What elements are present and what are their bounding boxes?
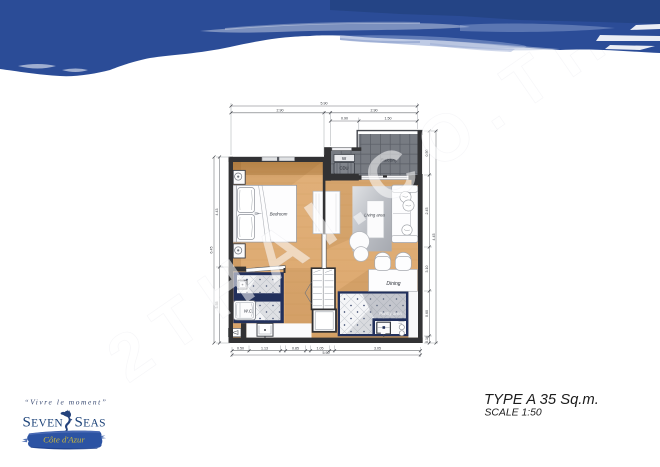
svg-text:Côte d'Azur: Côte d'Azur [43, 435, 85, 445]
svg-text:0.60: 0.60 [425, 310, 429, 317]
svg-text:“Vivre le moment”: “Vivre le moment” [24, 398, 107, 407]
svg-text:1.50: 1.50 [385, 117, 392, 121]
svg-text:SEVEN: SEVEN [23, 415, 64, 431]
svg-text:3.05: 3.05 [374, 347, 381, 351]
svg-text:TYPE A 35 Sq.m.: TYPE A 35 Sq.m. [484, 392, 599, 408]
svg-text:SCALE 1:50: SCALE 1:50 [485, 407, 542, 418]
svg-text:0.90: 0.90 [341, 117, 348, 121]
svg-text:SEAS: SEAS [75, 415, 106, 431]
svg-text:2.90: 2.90 [371, 108, 378, 112]
svg-text:2.90: 2.90 [277, 108, 284, 112]
svg-text:1.13: 1.13 [261, 347, 268, 351]
svg-text:4.43: 4.43 [215, 209, 219, 216]
svg-text:5.90: 5.90 [321, 102, 328, 106]
svg-text:2.45: 2.45 [425, 208, 429, 215]
svg-text:Dining: Dining [386, 281, 400, 287]
svg-text:0.50: 0.50 [237, 347, 244, 351]
svg-text:0.85: 0.85 [292, 347, 299, 351]
svg-text:0.16: 0.16 [425, 336, 429, 343]
svg-text:Pantry area: Pantry area [379, 311, 402, 316]
svg-text:3.10: 3.10 [425, 266, 429, 273]
svg-text:4.45: 4.45 [432, 234, 436, 241]
svg-text:5.90: 5.90 [323, 351, 330, 355]
